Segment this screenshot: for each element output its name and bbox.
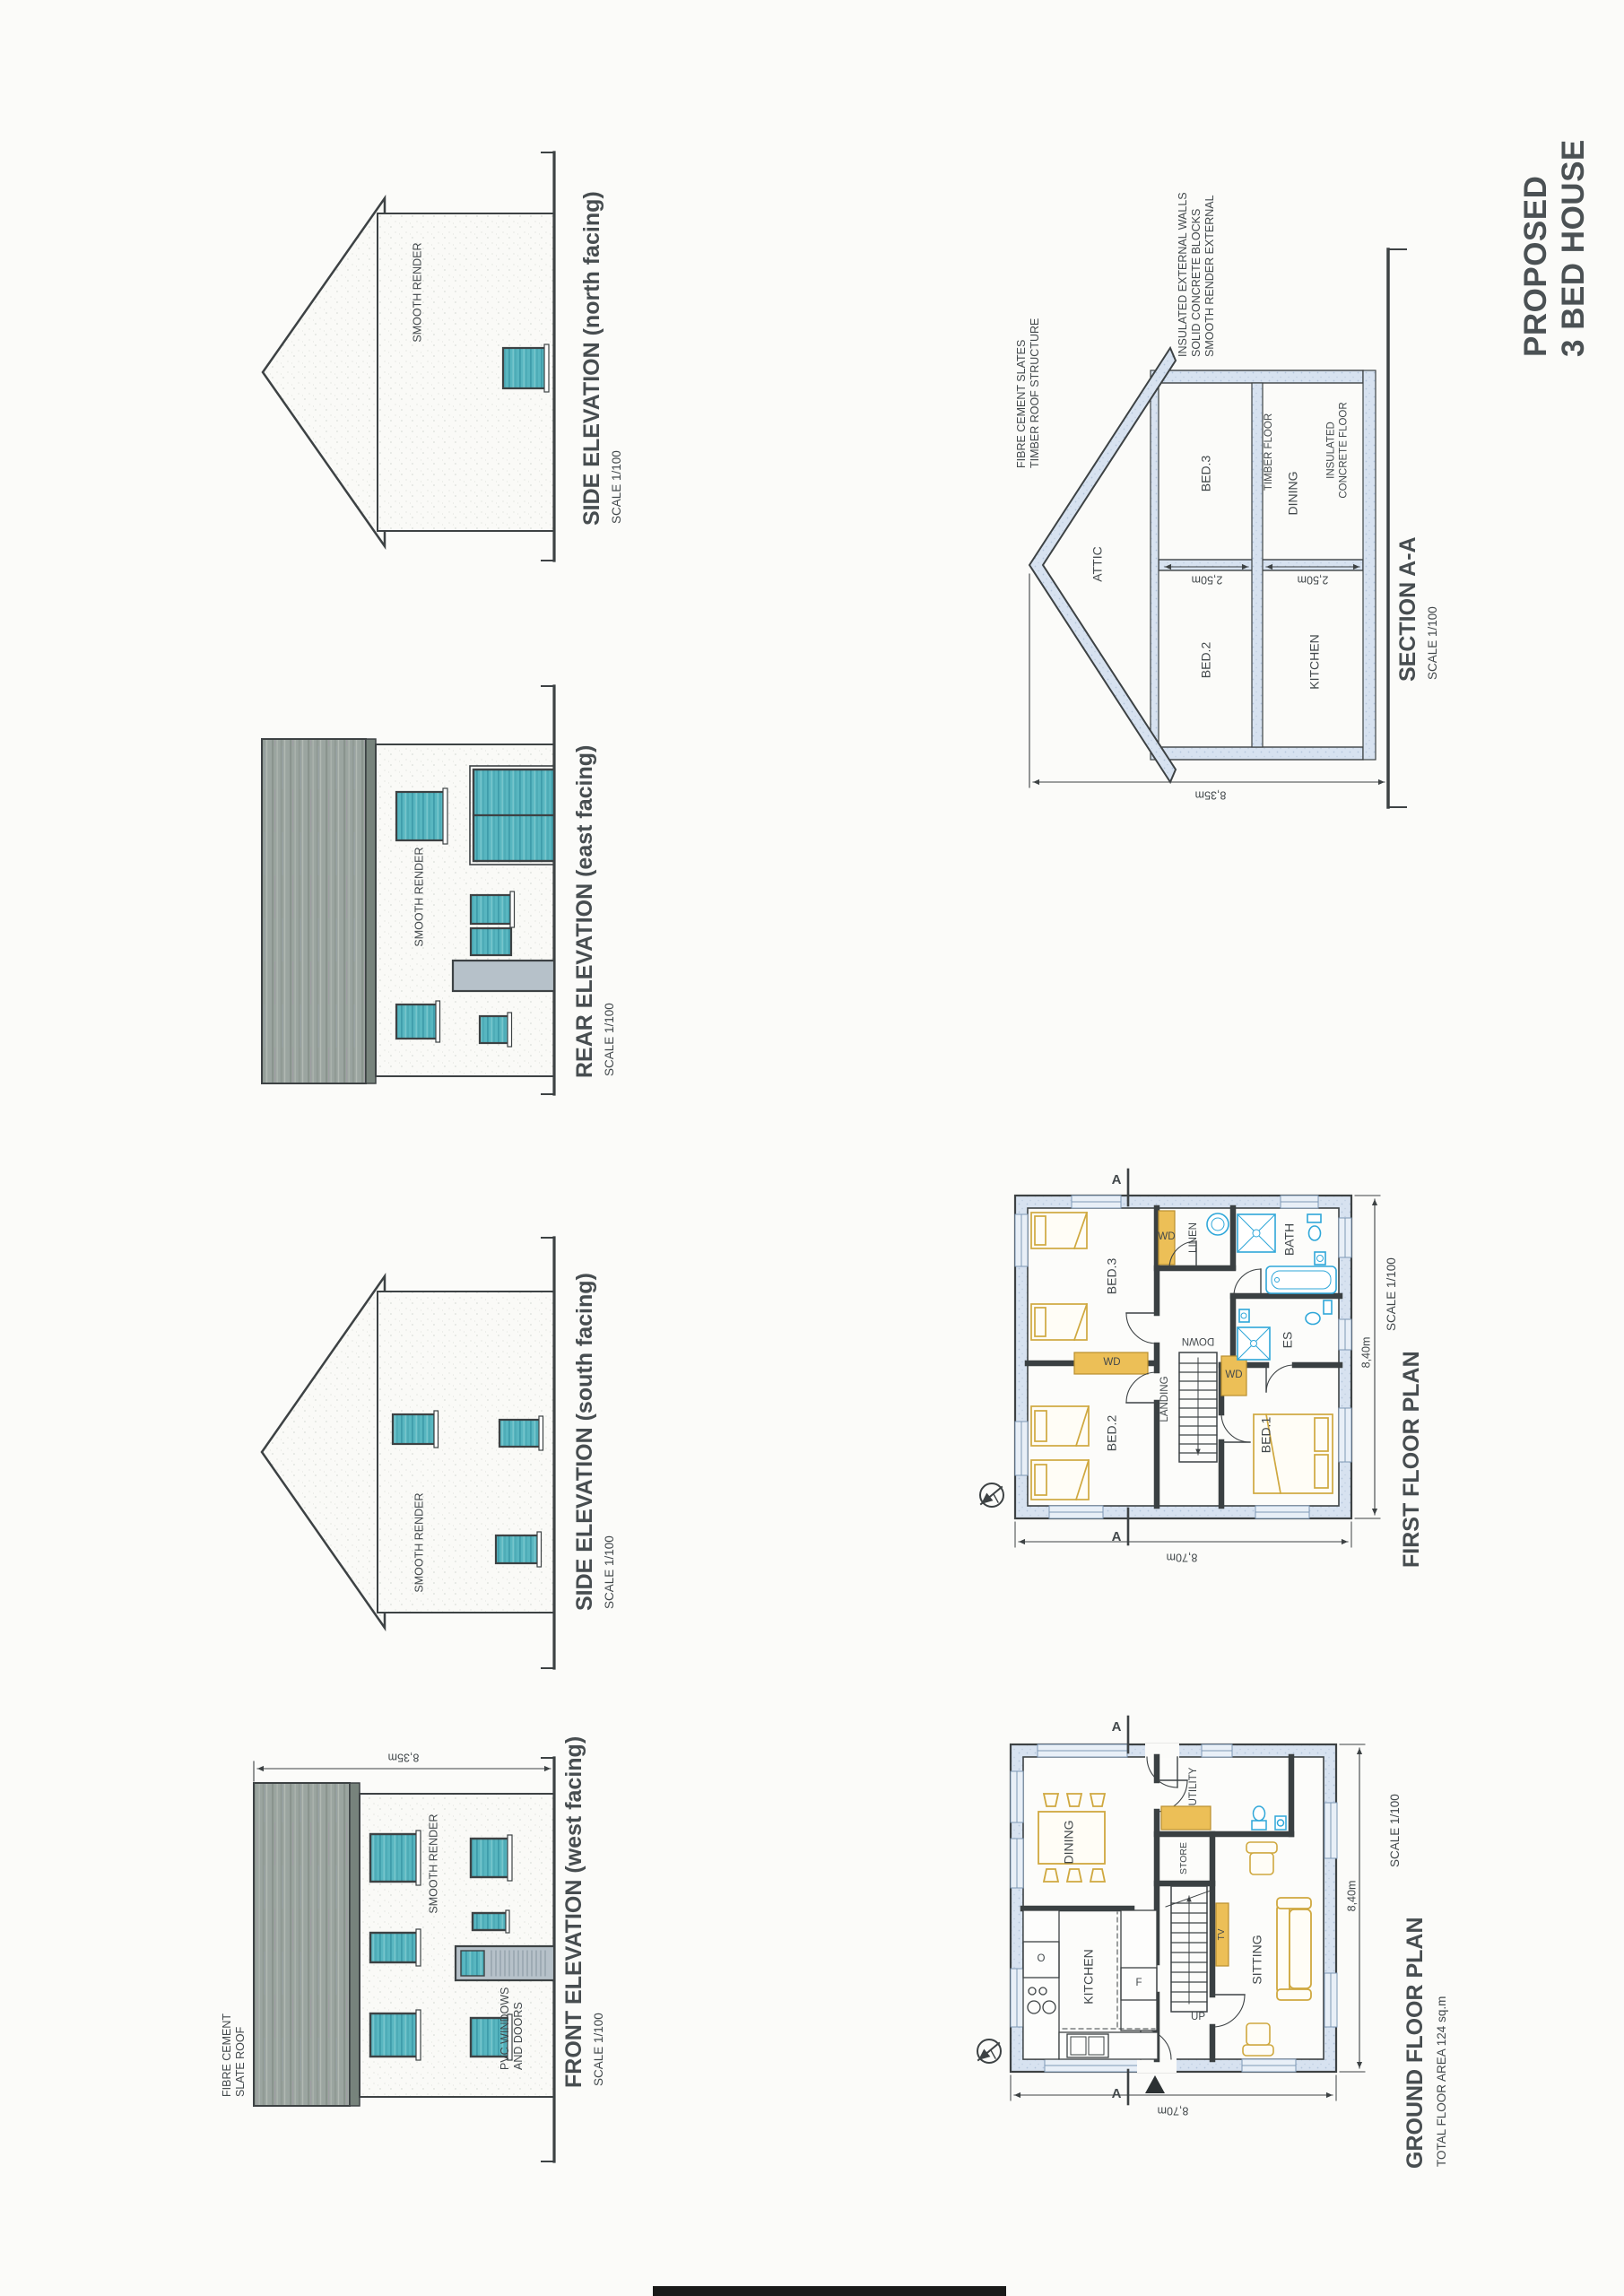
ff-landing-label: LANDING (1159, 1376, 1172, 1422)
gf-store-label: STORE (1178, 1842, 1189, 1874)
gf-kitchen-label: KITCHEN (1081, 1949, 1097, 2004)
gf-fridge-label: F (1135, 1978, 1142, 1990)
gf-sitting-label: SITTING (1250, 1935, 1265, 1984)
gf-oven-label: O (1038, 1953, 1046, 1966)
north-arrow-icon (980, 1483, 1003, 1507)
section-bed2-label: BED.2 (1199, 642, 1214, 678)
section-wall-note: INSULATED EXTERNAL WALLS SOLID CONCRETE … (1177, 192, 1216, 357)
section-dining-label: DINING (1286, 472, 1301, 516)
section-height-dim: 8,35m (1195, 788, 1227, 802)
first-floor-scale: SCALE 1/100 (1385, 1257, 1399, 1331)
front-pvc-note: PVC WINDOWS AND DOORS (499, 1987, 525, 2070)
scanned-page: FIBRE CEMENT SLATE ROOF SMOOTH RENDER PV… (0, 0, 1624, 2296)
utility-counter (1161, 1806, 1211, 1830)
back-door (453, 961, 554, 991)
patio-doors (470, 766, 554, 865)
ff-width-dim: 8,40m (1360, 1337, 1374, 1369)
rear-elevation-scale: SCALE 1/100 (603, 1003, 617, 1076)
ground-floor-plan-drawing (977, 1717, 1365, 2104)
gf-width-dim: 8,40m (1346, 1881, 1359, 1912)
front-roof-note: FIBRE CEMENT SLATE ROOF (221, 2013, 248, 2097)
entrance-arrow (1145, 2075, 1165, 2093)
ff-wd2-label: WD (1158, 1231, 1175, 1244)
gf-dining-label: DINING (1062, 1821, 1077, 1865)
gf-up-label: UP (1191, 2012, 1205, 2024)
south-render-note: SMOOTH RENDER (413, 1492, 427, 1592)
section-roof-note: FIBRE CEMENT SLATES TIMBER ROOF STRUCTUR… (1015, 318, 1042, 468)
ff-section-marker-left: A (1112, 1529, 1122, 1545)
ff-bed3-label: BED.3 (1105, 1258, 1120, 1294)
south-elevation-drawing (262, 1238, 554, 1668)
front-door (456, 1946, 554, 1980)
ff-section-marker-right: A (1112, 1172, 1122, 1188)
north-elevation-title: SIDE ELEVATION (north facing) (579, 191, 606, 526)
section-drawing (1029, 249, 1406, 807)
section-storey-dim-lower: 2,50m (1298, 573, 1329, 587)
front-height-dim: 8,35m (388, 1751, 420, 1764)
front-elevation-scale: SCALE 1/100 (592, 2013, 606, 2086)
gf-tv-label: TV (1217, 1929, 1228, 1941)
north-arrow-icon (977, 2039, 1001, 2063)
ff-bed1-label: BED.1 (1259, 1417, 1274, 1453)
section-storey-dim-upper: 2,50m (1192, 573, 1223, 587)
section-timber-floor-label: TIMBER FLOOR (1264, 413, 1276, 491)
ground-floor-area: TOTAL FLOOR AREA 124 sq.m (1435, 1996, 1449, 2167)
section-kitchen-label: KITCHEN (1307, 634, 1323, 689)
front-render-note: SMOOTH RENDER (428, 1813, 441, 1913)
section-scale: SCALE 1/100 (1426, 606, 1440, 680)
sheet-title-line1: PROPOSED (1517, 176, 1554, 357)
north-elevation-drawing (263, 152, 554, 561)
ff-wd1-label: WD (1103, 1357, 1120, 1370)
ground-floor-title: GROUND FLOOR PLAN (1403, 1917, 1429, 2169)
front-elevation-drawing (254, 1758, 554, 2161)
rear-elevation-title: REAR ELEVATION (east facing) (572, 745, 599, 1078)
ff-depth-dim: 8,70m (1167, 1551, 1198, 1564)
front-elevation-title: FRONT ELEVATION (west facing) (561, 1736, 588, 2088)
gf-section-marker-left: A (1112, 2086, 1122, 2102)
gf-depth-dim: 8,70m (1158, 2104, 1189, 2118)
stairs-down (1179, 1352, 1217, 1462)
section-attic-label: ATTIC (1090, 546, 1106, 581)
sheet-title-line2: 3 BED HOUSE (1555, 139, 1592, 357)
first-floor-plan-drawing (980, 1170, 1380, 1547)
section-title: SECTION A-A (1395, 536, 1422, 682)
drawing-sheet: FIBRE CEMENT SLATE ROOF SMOOTH RENDER PV… (0, 0, 1624, 2296)
north-render-note: SMOOTH RENDER (412, 242, 425, 342)
north-elevation-scale: SCALE 1/100 (610, 450, 624, 524)
stairs-up (1166, 1886, 1211, 2012)
ff-es-label: ES (1281, 1332, 1296, 1349)
ff-bed2-label: BED.2 (1105, 1415, 1120, 1451)
scan-artifact-strip (653, 2286, 1006, 2296)
ff-bath-label: BATH (1282, 1223, 1298, 1256)
drawing-linework (0, 0, 1624, 2296)
first-floor-title: FIRST FLOOR PLAN (1399, 1351, 1426, 1568)
gf-section-marker-right: A (1112, 1719, 1122, 1735)
ff-linen-label: LINEN (1188, 1222, 1201, 1253)
gf-utility-label: UTILITY (1188, 1768, 1201, 1806)
rear-render-note: SMOOTH RENDER (413, 847, 427, 946)
section-bed3-label: BED.3 (1199, 456, 1214, 491)
south-elevation-title: SIDE ELEVATION (south facing) (572, 1273, 599, 1611)
section-concrete-floor-label: INSULATED CONCRETE FLOOR (1325, 402, 1350, 498)
rear-elevation-drawing (262, 686, 554, 1094)
ff-down-label: DOWN (1182, 1334, 1214, 1346)
ff-wd3-label: WD (1225, 1370, 1242, 1382)
sofa (1277, 1898, 1311, 2000)
south-elevation-scale: SCALE 1/100 (603, 1535, 617, 1609)
ground-floor-scale: SCALE 1/100 (1388, 1794, 1403, 1867)
